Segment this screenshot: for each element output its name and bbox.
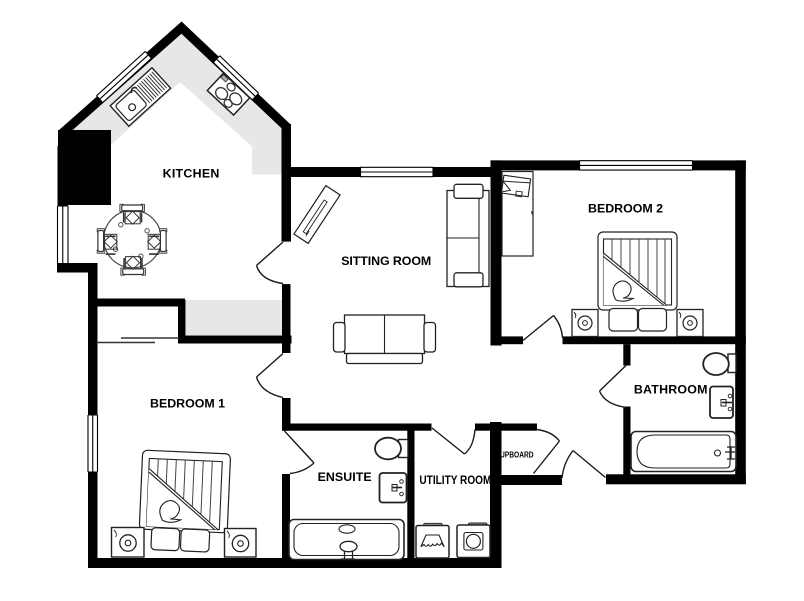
svg-text:BEDROOM 2: BEDROOM 2 [588, 201, 663, 215]
svg-text:BEDROOM 1: BEDROOM 1 [150, 396, 225, 410]
svg-text:ENSUITE: ENSUITE [318, 470, 372, 484]
svg-text:UPBOARD: UPBOARD [500, 450, 534, 459]
svg-text:KITCHEN: KITCHEN [163, 166, 220, 180]
svg-text:SITTING ROOM: SITTING ROOM [341, 254, 431, 268]
svg-text:BATHROOM: BATHROOM [634, 382, 708, 396]
svg-text:UTILITY ROOM: UTILITY ROOM [419, 473, 491, 487]
